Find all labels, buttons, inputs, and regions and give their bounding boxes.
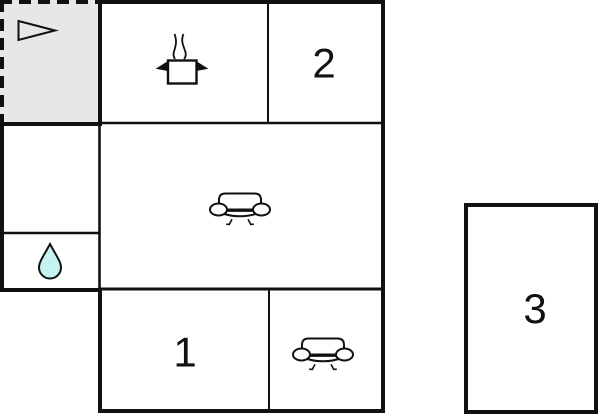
terrace-area: [0, 0, 100, 124]
steam-line-icon: [173, 34, 176, 59]
water-drop-icon: [39, 244, 61, 279]
floor-plan: 1 2 3: [0, 0, 600, 417]
pot-handle-left: [157, 62, 168, 71]
terrace: [0, 0, 100, 124]
lounge-sofa-icon: [293, 339, 353, 370]
living-room-sofa-icon: [210, 194, 270, 225]
kitchen-pot-icon: [157, 34, 207, 84]
steam-line-icon: [182, 34, 186, 59]
room-1-label: 1: [173, 329, 196, 376]
room-2-label: 2: [312, 40, 335, 87]
floor-plan-canvas: 1 2 3: [0, 0, 600, 417]
pot-body: [168, 61, 197, 84]
room-3-label: 3: [523, 285, 546, 332]
